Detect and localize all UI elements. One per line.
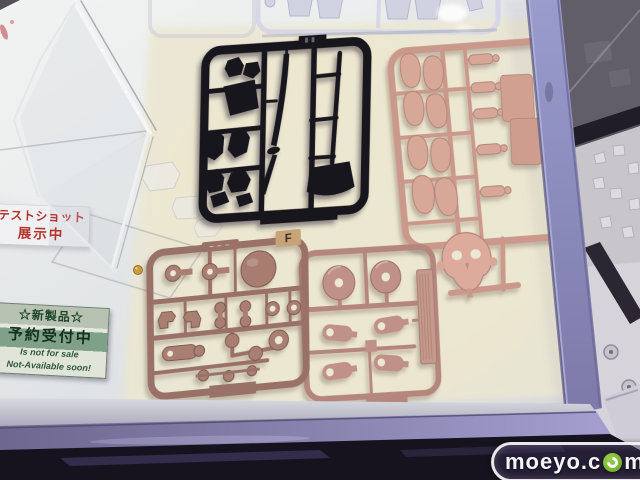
watermark-text-suffix: m [624, 449, 640, 475]
scene-art: テストショット 展示中 [0, 0, 640, 480]
watermark-green-o-icon [603, 453, 622, 472]
runner-tag-letter: F [285, 231, 292, 246]
gold-dot [134, 266, 143, 275]
watermark-text-prefix: moeyo.c [505, 449, 601, 475]
glass-shine [437, 4, 467, 22]
sign-test-shot-line2: 展示中 [18, 225, 65, 243]
watermark-moeyo: moeyo.cm [491, 442, 640, 480]
photo-display-case-scene: テストショット 展示中 [0, 0, 640, 480]
sign-new-product: ☆新製品☆ 予約受付中 Is not for sale Not-Availabl… [0, 302, 110, 379]
